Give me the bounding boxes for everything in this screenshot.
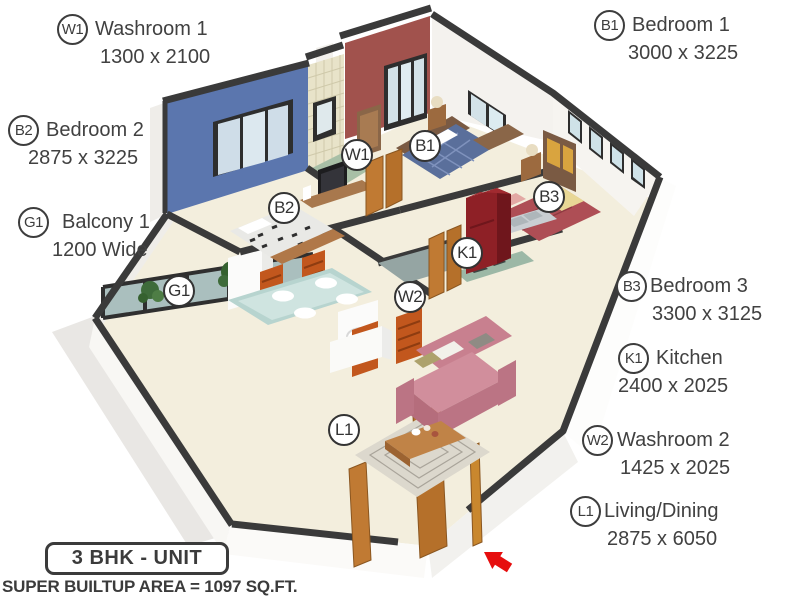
legend-balcony1-name: Balcony 1 bbox=[62, 211, 150, 234]
legend-living-dining: L1Living/Dining 2875 x 6050 bbox=[570, 496, 719, 551]
legend-washroom1-dims: 1300 x 2100 bbox=[100, 46, 210, 69]
legend-living-dining-dims: 2875 x 6050 bbox=[607, 528, 719, 551]
legend-washroom2-code: W2 bbox=[582, 425, 613, 456]
legend-washroom2-dims: 1425 x 2025 bbox=[620, 457, 730, 480]
plan-badge-b2: B2 bbox=[268, 192, 300, 224]
legend-living-dining-name: Living/Dining bbox=[604, 500, 719, 523]
legend-kitchen: K1Kitchen 2400 x 2025 bbox=[618, 343, 728, 398]
legend-bedroom3-code: B3 bbox=[616, 271, 647, 302]
super-builtup-area: SUPER BUILTUP AREA = 1097 SQ.FT. bbox=[2, 577, 297, 597]
plan-badge-k1: K1 bbox=[451, 237, 483, 269]
legend-kitchen-code: K1 bbox=[618, 343, 649, 374]
legend-washroom1-name: Washroom 1 bbox=[95, 18, 208, 41]
legend-bedroom1-dims: 3000 x 3225 bbox=[628, 42, 738, 65]
legend-bedroom2-dims: 2875 x 3225 bbox=[28, 147, 144, 170]
legend-bedroom1-code: B1 bbox=[594, 10, 625, 41]
entrance-arrow bbox=[484, 552, 512, 572]
unit-type-box: 3 BHK - UNIT bbox=[45, 542, 229, 575]
floor-plan-page: W1 B1 B2 B3 K1 W2 G1 L1 W1Washroom 1 130… bbox=[0, 0, 800, 600]
legend-bedroom3-dims: 3300 x 3125 bbox=[652, 303, 762, 326]
corridor-door bbox=[429, 232, 444, 299]
washroom1-tile-wall bbox=[308, 54, 344, 170]
legend-balcony1-code: G1 bbox=[18, 207, 49, 238]
legend-bedroom1-name: Bedroom 1 bbox=[632, 14, 730, 37]
plan-badge-w1: W1 bbox=[341, 139, 373, 171]
legend-kitchen-dims: 2400 x 2025 bbox=[618, 375, 728, 398]
plan-badge-b1: B1 bbox=[409, 130, 441, 162]
legend-washroom1: W1Washroom 1 1300 x 2100 bbox=[57, 14, 210, 69]
legend-kitchen-name: Kitchen bbox=[656, 347, 723, 370]
legend-balcony1: G1Balcony 1 1200 Wide bbox=[18, 207, 150, 262]
plan-badge-l1: L1 bbox=[328, 414, 360, 446]
plan-badge-g1: G1 bbox=[163, 275, 195, 307]
legend-bedroom1: B1Bedroom 1 3000 x 3225 bbox=[594, 10, 738, 65]
legend-bedroom2-name: Bedroom 2 bbox=[46, 119, 144, 142]
bedroom1-lamp bbox=[431, 96, 443, 108]
legend-washroom1-code: W1 bbox=[57, 14, 88, 45]
legend-bedroom2: B2Bedroom 2 2875 x 3225 bbox=[8, 115, 144, 170]
legend-living-dining-code: L1 bbox=[570, 496, 601, 527]
legend-bedroom3: B3Bedroom 3 3300 x 3125 bbox=[616, 271, 762, 326]
bedroom3-lamp bbox=[526, 144, 538, 156]
legend-washroom2: W2Washroom 2 1425 x 2025 bbox=[582, 425, 730, 480]
legend-bedroom3-name: Bedroom 3 bbox=[650, 275, 748, 298]
plan-badge-b3: B3 bbox=[533, 181, 565, 213]
legend-bedroom2-code: B2 bbox=[8, 115, 39, 146]
legend-washroom2-name: Washroom 2 bbox=[617, 429, 730, 452]
plan-badge-w2: W2 bbox=[394, 281, 426, 313]
legend-balcony1-dims: 1200 Wide bbox=[52, 239, 150, 262]
